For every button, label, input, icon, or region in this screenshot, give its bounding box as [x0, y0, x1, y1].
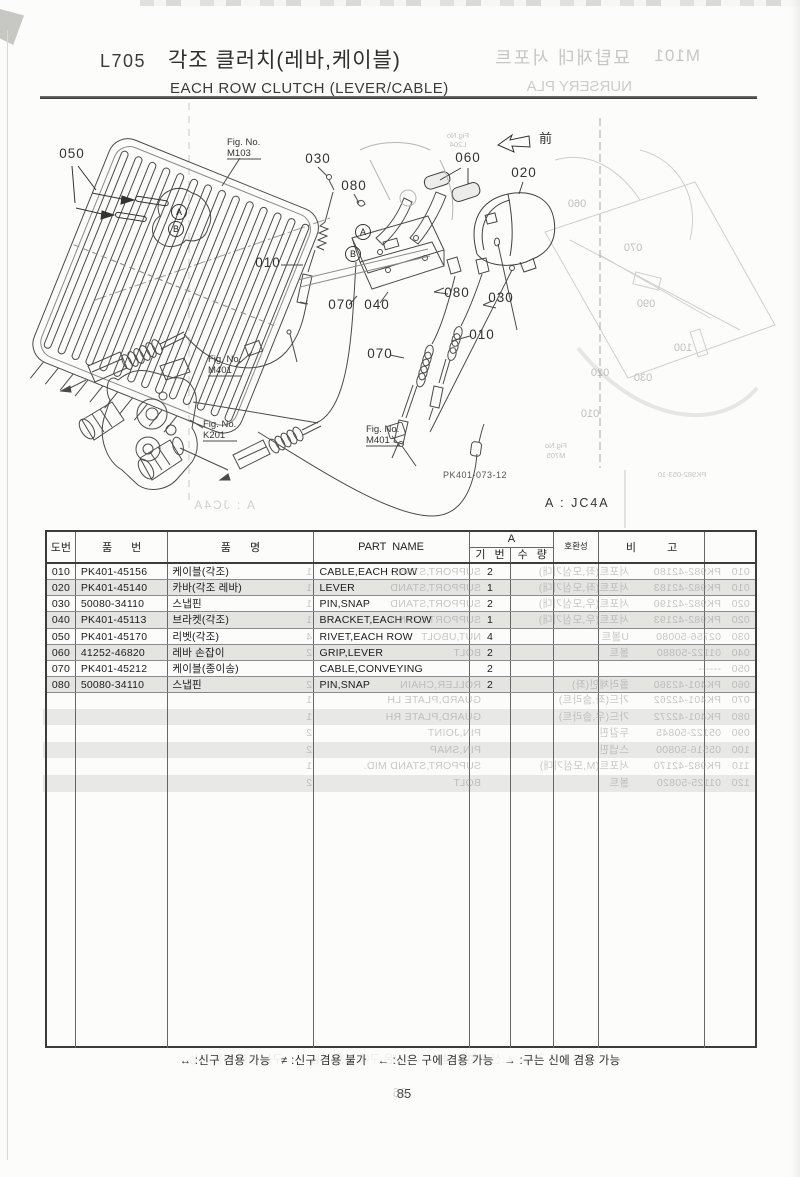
empty-column: [470, 693, 512, 1048]
table-cell: [511, 596, 554, 611]
empty-column: [76, 693, 168, 1048]
table-cell: 020: [47, 580, 76, 595]
header-extra: [705, 532, 755, 562]
table-cell: [599, 629, 705, 644]
empty-column: [511, 693, 554, 1048]
table-cell: 카바(각조 레바): [168, 580, 313, 595]
table-empty-zone: [47, 693, 755, 1048]
table-cell: [511, 661, 554, 676]
table-cell: [554, 661, 599, 676]
table-cell: 2: [470, 596, 512, 611]
header-group-a: A 기 번 수 량: [470, 532, 555, 562]
table-cell: 030: [47, 596, 76, 611]
table-row: 03050080-34110스냅핀PIN,SNAP2: [47, 596, 755, 612]
diagram-label: 070: [367, 346, 393, 361]
table-cell: 41252-46820: [76, 645, 168, 660]
table-row: 020PK401-45140카바(각조 레바)LEVER1: [47, 580, 755, 596]
footer-legend: ↔ :신구 겸용 가능 ≠ :신구 겸용 불가 ← :신은 구에 겸용 가능 →…: [0, 1052, 800, 1068]
diagram-label: Fig.No: [545, 441, 567, 450]
table-body: 010PK401-45156케이블(각조)CABLE,EACH ROW2020P…: [47, 564, 755, 693]
diagram-label: PK982-053-10: [658, 470, 706, 479]
diagram-label: 010: [255, 255, 281, 270]
table-cell: 060: [47, 645, 76, 660]
table-cell: [511, 612, 554, 627]
table-cell: 4: [470, 629, 512, 644]
diagram-label: M103: [227, 148, 251, 159]
ghost-diagram: 060070090100020030010Fig.NoM705PK982-053…: [447, 131, 775, 479]
table-cell: [599, 596, 705, 611]
header-part-name: PART NAME: [314, 532, 470, 562]
table-cell: [705, 612, 755, 627]
diagram-label: 090: [637, 298, 655, 310]
table-row: 06041252-46820레바 손잡이GRIP,LEVER2: [47, 645, 755, 661]
table-cell: 040: [47, 612, 76, 627]
table-cell: 2: [470, 661, 512, 676]
table-cell: [554, 596, 599, 611]
table-cell: 1: [470, 580, 512, 595]
diagram-label: 010: [469, 327, 495, 342]
table-cell: [511, 564, 554, 579]
exploded-parts-diagram: 060070090100020030010Fig.NoM705PK982-053…: [0, 0, 800, 530]
table-cell: PK401-45113: [76, 612, 168, 627]
diagram-label: 080: [341, 178, 367, 193]
bracket-assembly: [352, 192, 446, 289]
table-cell: [705, 661, 755, 676]
header-remark: 비 고: [599, 532, 705, 562]
diagram-label: M401: [366, 435, 390, 446]
diagram-label: Fig. No.: [227, 137, 260, 148]
diagram-label: 070: [624, 242, 642, 254]
table-cell: 50080-34110: [76, 596, 168, 611]
diagram-label: Fig. No.: [203, 419, 236, 430]
table-cell: [554, 564, 599, 579]
diagram-label: B: [350, 249, 356, 259]
diagram-label: 020: [511, 165, 537, 180]
catalog-page: 060070090100020030010Fig.NoM705PK982-053…: [0, 0, 800, 1177]
table-cell: [599, 645, 705, 660]
table-cell: CABLE,CONVEYING: [314, 661, 470, 676]
table-cell: [705, 564, 755, 579]
diagram-label: A: [360, 227, 366, 237]
table-cell: GRIP,LEVER: [314, 645, 470, 660]
front-arrow: [498, 135, 530, 152]
table-cell: [599, 612, 705, 627]
table-cell: [705, 629, 755, 644]
table-cell: [705, 677, 755, 692]
table-cell: [511, 580, 554, 595]
table-cell: [705, 596, 755, 611]
table-cell: PK401-45140: [76, 580, 168, 595]
table-cell: PIN,SNAP: [314, 677, 470, 692]
table-cell: BRACKET,EACH ROW: [314, 612, 470, 627]
table-cell: PK401-45170: [76, 629, 168, 644]
table-cell: 스냅핀: [168, 677, 313, 692]
header-compat: 호환성: [554, 532, 599, 562]
diagram-label: K201: [203, 430, 225, 441]
table-cell: [599, 564, 705, 579]
table-cell: LEVER: [314, 580, 470, 595]
diagram-label: 060: [568, 198, 586, 210]
table-cell: [554, 677, 599, 692]
header-part-no: 품 번: [76, 532, 168, 562]
empty-column: [314, 693, 470, 1048]
seedling-tray-panel: [19, 133, 324, 458]
diagram-label: 050: [59, 146, 85, 161]
table-cell: [554, 580, 599, 595]
table-cell: PK401-45212: [76, 661, 168, 676]
table-cell: [554, 629, 599, 644]
table-cell: 50080-34110: [76, 677, 168, 692]
table-cell: 080: [47, 677, 76, 692]
diagram-label: Fig.No: [447, 131, 469, 140]
table-cell: 케이블(종이송): [168, 661, 313, 676]
diagram-label: Fig. No.: [366, 424, 399, 435]
table-cell: 스냅핀: [168, 596, 313, 611]
diagram-label: L204: [450, 140, 467, 149]
parts-table: 도번 품 번 품 명 PART NAME A 기 번 수 량 호환성 비 고 0…: [45, 530, 757, 1048]
table-cell: PK401-45156: [76, 564, 168, 579]
table-cell: 1: [470, 612, 512, 627]
header-qty: 수 량: [511, 548, 553, 563]
table-cell: RIVET,EACH ROW: [314, 629, 470, 644]
table-cell: [599, 580, 705, 595]
diagram-label: 030: [634, 372, 652, 384]
header-no: 도번: [47, 532, 76, 562]
diagram-label: A: [176, 207, 182, 217]
balloon-outline: [153, 188, 211, 246]
table-cell: 2: [470, 677, 512, 692]
table-cell: 케이블(각조): [168, 564, 313, 579]
cable-each-row-bottom: [220, 262, 356, 480]
table-row: 040PK401-45113브라켓(각조)BRACKET,EACH ROW1: [47, 612, 755, 628]
table-cell: [705, 580, 755, 595]
table-cell: [511, 677, 554, 692]
empty-column: [554, 693, 599, 1048]
diagram-label: 030: [305, 151, 331, 166]
diagram-label: M705: [547, 451, 566, 460]
table-cell: 브라켓(각조): [168, 612, 313, 627]
table-cell: [511, 645, 554, 660]
table-row: 08050080-34110스냅핀PIN,SNAP2: [47, 677, 755, 693]
table-cell: [599, 677, 705, 692]
diagram-label: M401: [208, 365, 232, 376]
table-cell: [511, 629, 554, 644]
diagram-label: 100: [674, 342, 692, 354]
diagram-label: 070: [328, 297, 354, 312]
diagram-label: 080: [444, 285, 470, 300]
table-cell: 010: [47, 564, 76, 579]
table-cell: 2: [470, 645, 512, 660]
table-cell: [554, 612, 599, 627]
table-row: 010PK401-45156케이블(각조)CABLE,EACH ROW2: [47, 564, 755, 580]
table-cell: 2: [470, 564, 512, 579]
table-cell: PIN,SNAP: [314, 596, 470, 611]
header-a: A: [470, 532, 554, 548]
table-cell: 050: [47, 629, 76, 644]
header-serial: 기 번: [470, 548, 512, 563]
header-name-ko: 품 명: [168, 532, 313, 562]
diagram-label: 040: [364, 297, 390, 312]
balloon-markers: ABAB: [169, 205, 371, 262]
front-direction-label: 前: [539, 131, 552, 146]
table-row: 050PK401-45170리벳(각조)RIVET,EACH ROW4: [47, 629, 755, 645]
table-cell: CABLE,EACH ROW: [314, 564, 470, 579]
table-cell: [599, 661, 705, 676]
empty-column: [705, 693, 755, 1048]
diagram-label: Fig. No.: [208, 354, 241, 365]
table-cell: 레바 손잡이: [168, 645, 313, 660]
table-row: 070PK401-45212케이블(종이송)CABLE,CONVEYING2: [47, 661, 755, 677]
diagram-label: 060: [455, 150, 481, 165]
table-header-row: 도번 품 번 품 명 PART NAME A 기 번 수 량 호환성 비 고: [47, 532, 755, 564]
diagram-label: B: [173, 224, 179, 234]
diagram-label: 010: [581, 408, 599, 420]
table-cell: [554, 645, 599, 660]
empty-column: [599, 693, 705, 1048]
table-cell: [705, 645, 755, 660]
empty-column: [47, 693, 76, 1048]
table-cell: 070: [47, 661, 76, 676]
page-number: 85: [392, 1086, 416, 1101]
table-cell: 리벳(각조): [168, 629, 313, 644]
diagram-label: 030: [488, 290, 514, 305]
empty-column: [168, 693, 313, 1048]
